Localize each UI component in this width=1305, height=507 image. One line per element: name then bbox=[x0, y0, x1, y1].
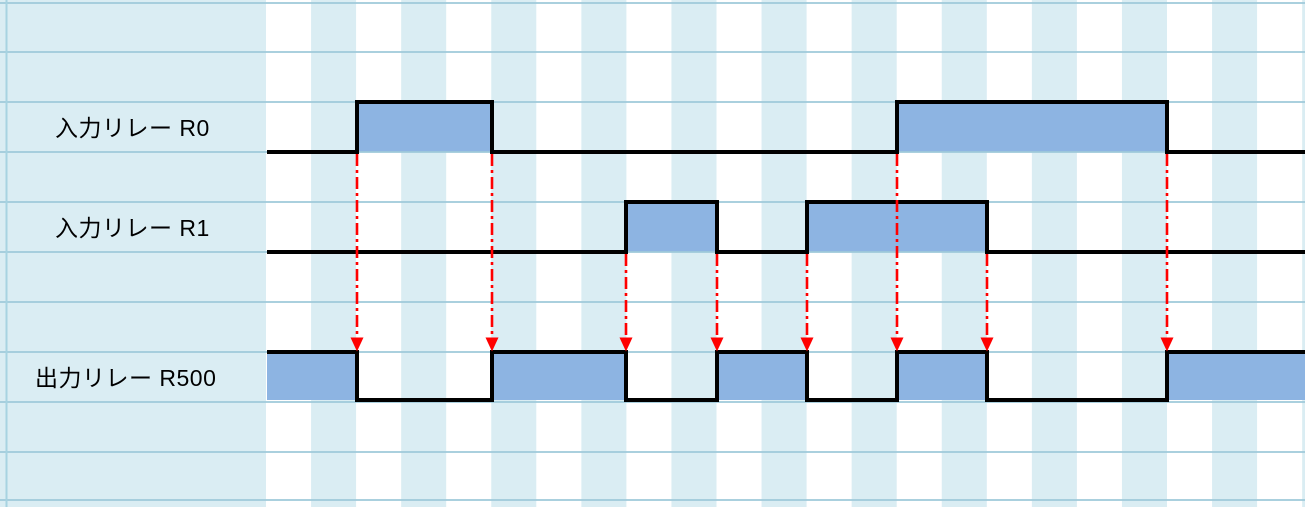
bg-stripe bbox=[671, 0, 716, 507]
signal-label-input-relay-r1: 入力リレー R1 bbox=[55, 201, 210, 251]
signal-high-fill-r500 bbox=[492, 354, 626, 400]
bg-stripe bbox=[852, 0, 897, 507]
bg-stripe bbox=[942, 0, 987, 507]
signal-high-fill-r0 bbox=[357, 104, 492, 152]
signal-label-input-relay-r0: 入力リレー R0 bbox=[55, 101, 210, 151]
signal-high-fill-r500 bbox=[1167, 354, 1305, 400]
signal-high-fill-r500 bbox=[267, 354, 357, 400]
timing-diagram-canvas: 入力リレー R0 入力リレー R1 出力リレー R500 bbox=[0, 0, 1305, 507]
signal-high-fill-r500 bbox=[897, 354, 987, 400]
signal-high-fill-r1 bbox=[626, 204, 717, 252]
signal-high-fill-r0 bbox=[897, 104, 1167, 152]
signal-high-fill-r500 bbox=[717, 354, 807, 400]
timing-diagram bbox=[0, 0, 1305, 507]
label-panel bbox=[0, 0, 266, 507]
signal-label-output-relay-r500: 出力リレー R500 bbox=[35, 351, 216, 401]
